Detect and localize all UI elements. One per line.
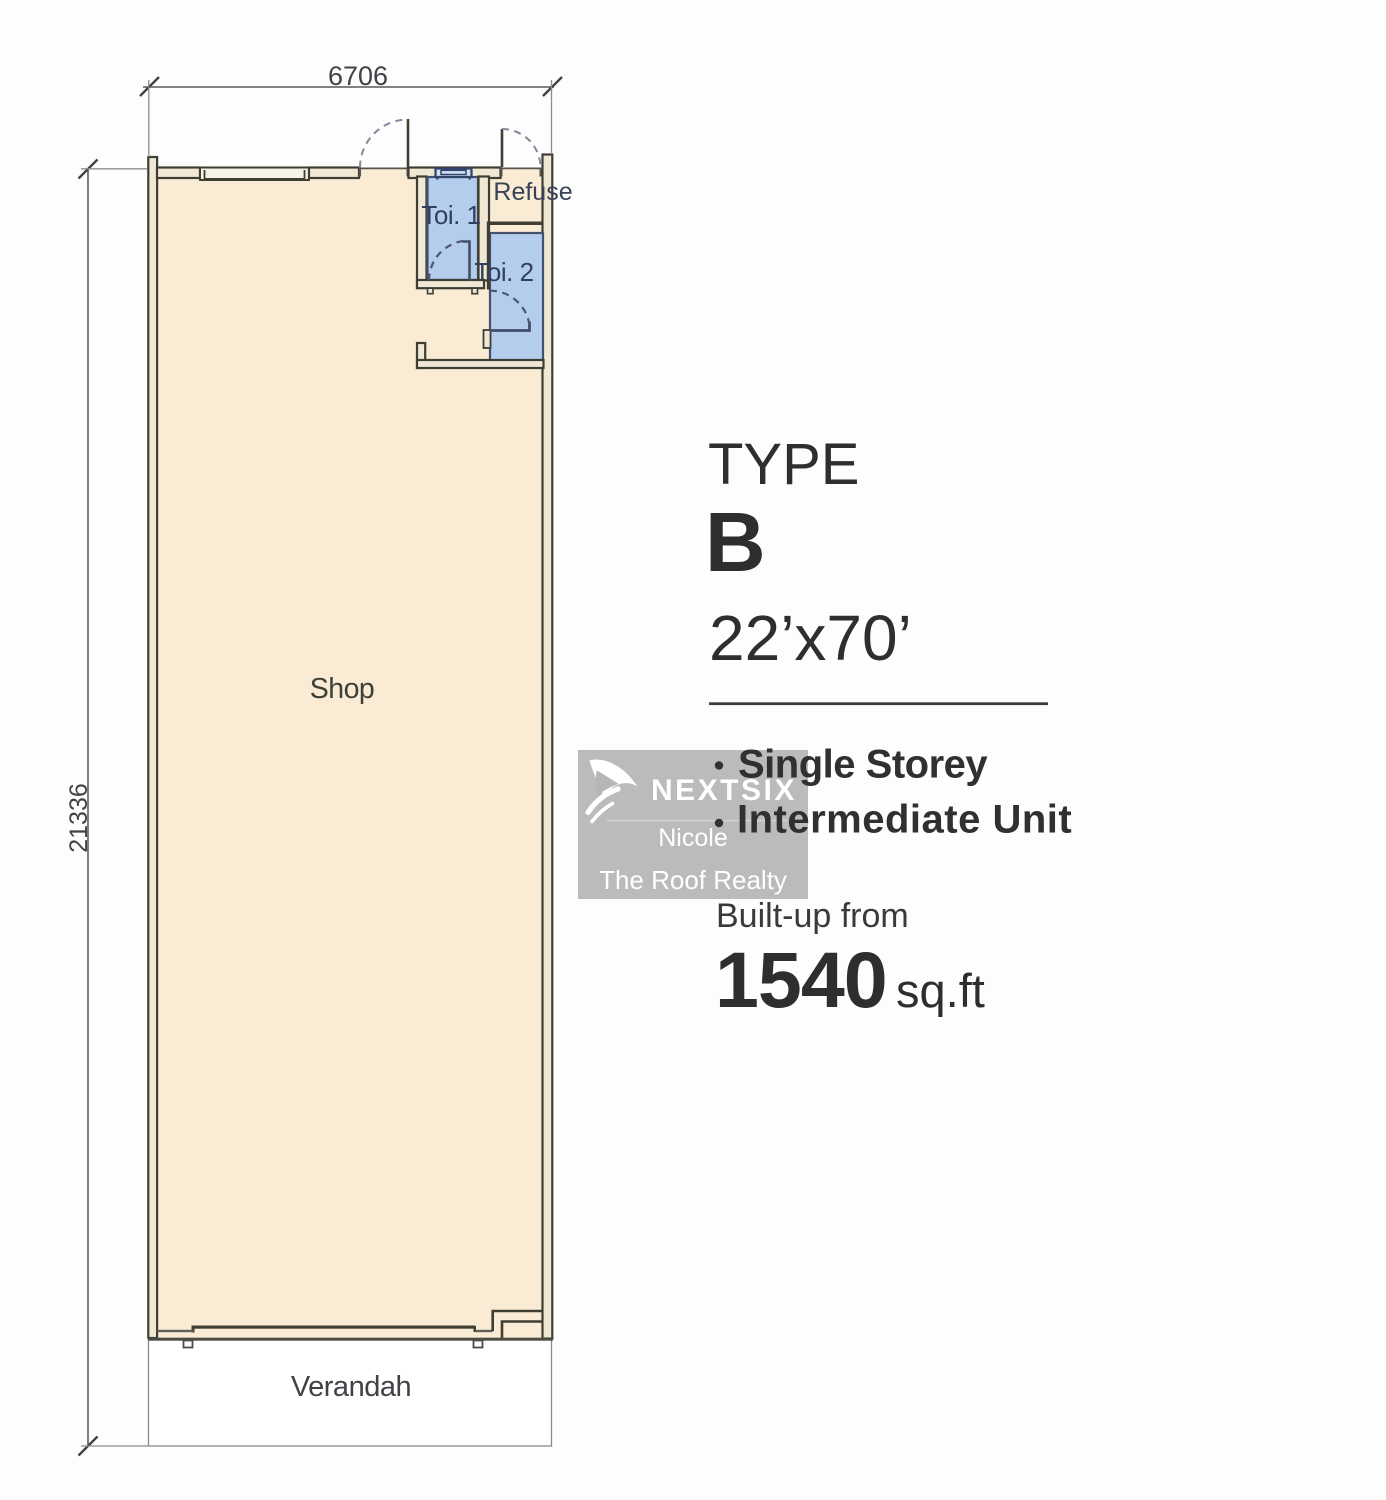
svg-text:Single Storey: Single Storey: [738, 743, 988, 787]
svg-text:Toi. 2: Toi. 2: [474, 257, 533, 287]
svg-text:6706: 6706: [328, 61, 388, 91]
svg-text:21336: 21336: [65, 783, 93, 853]
svg-text:1540: 1540: [715, 935, 887, 1024]
svg-text:B: B: [705, 495, 766, 589]
svg-text:sq.ft: sq.ft: [896, 964, 985, 1017]
svg-text:TYPE: TYPE: [708, 432, 860, 497]
svg-text:Intermediate Unit: Intermediate Unit: [737, 798, 1072, 842]
svg-text:Nicole: Nicole: [658, 824, 727, 852]
svg-text:Shop: Shop: [310, 673, 375, 705]
svg-text:Toi. 1: Toi. 1: [421, 200, 480, 230]
svg-text:22’x70’: 22’x70’: [709, 602, 912, 674]
svg-text:The Roof Realty: The Roof Realty: [599, 865, 787, 895]
svg-text:Refuse: Refuse: [493, 178, 572, 206]
svg-text:Built-up from: Built-up from: [716, 897, 909, 935]
svg-text:Verandah: Verandah: [291, 1371, 411, 1403]
